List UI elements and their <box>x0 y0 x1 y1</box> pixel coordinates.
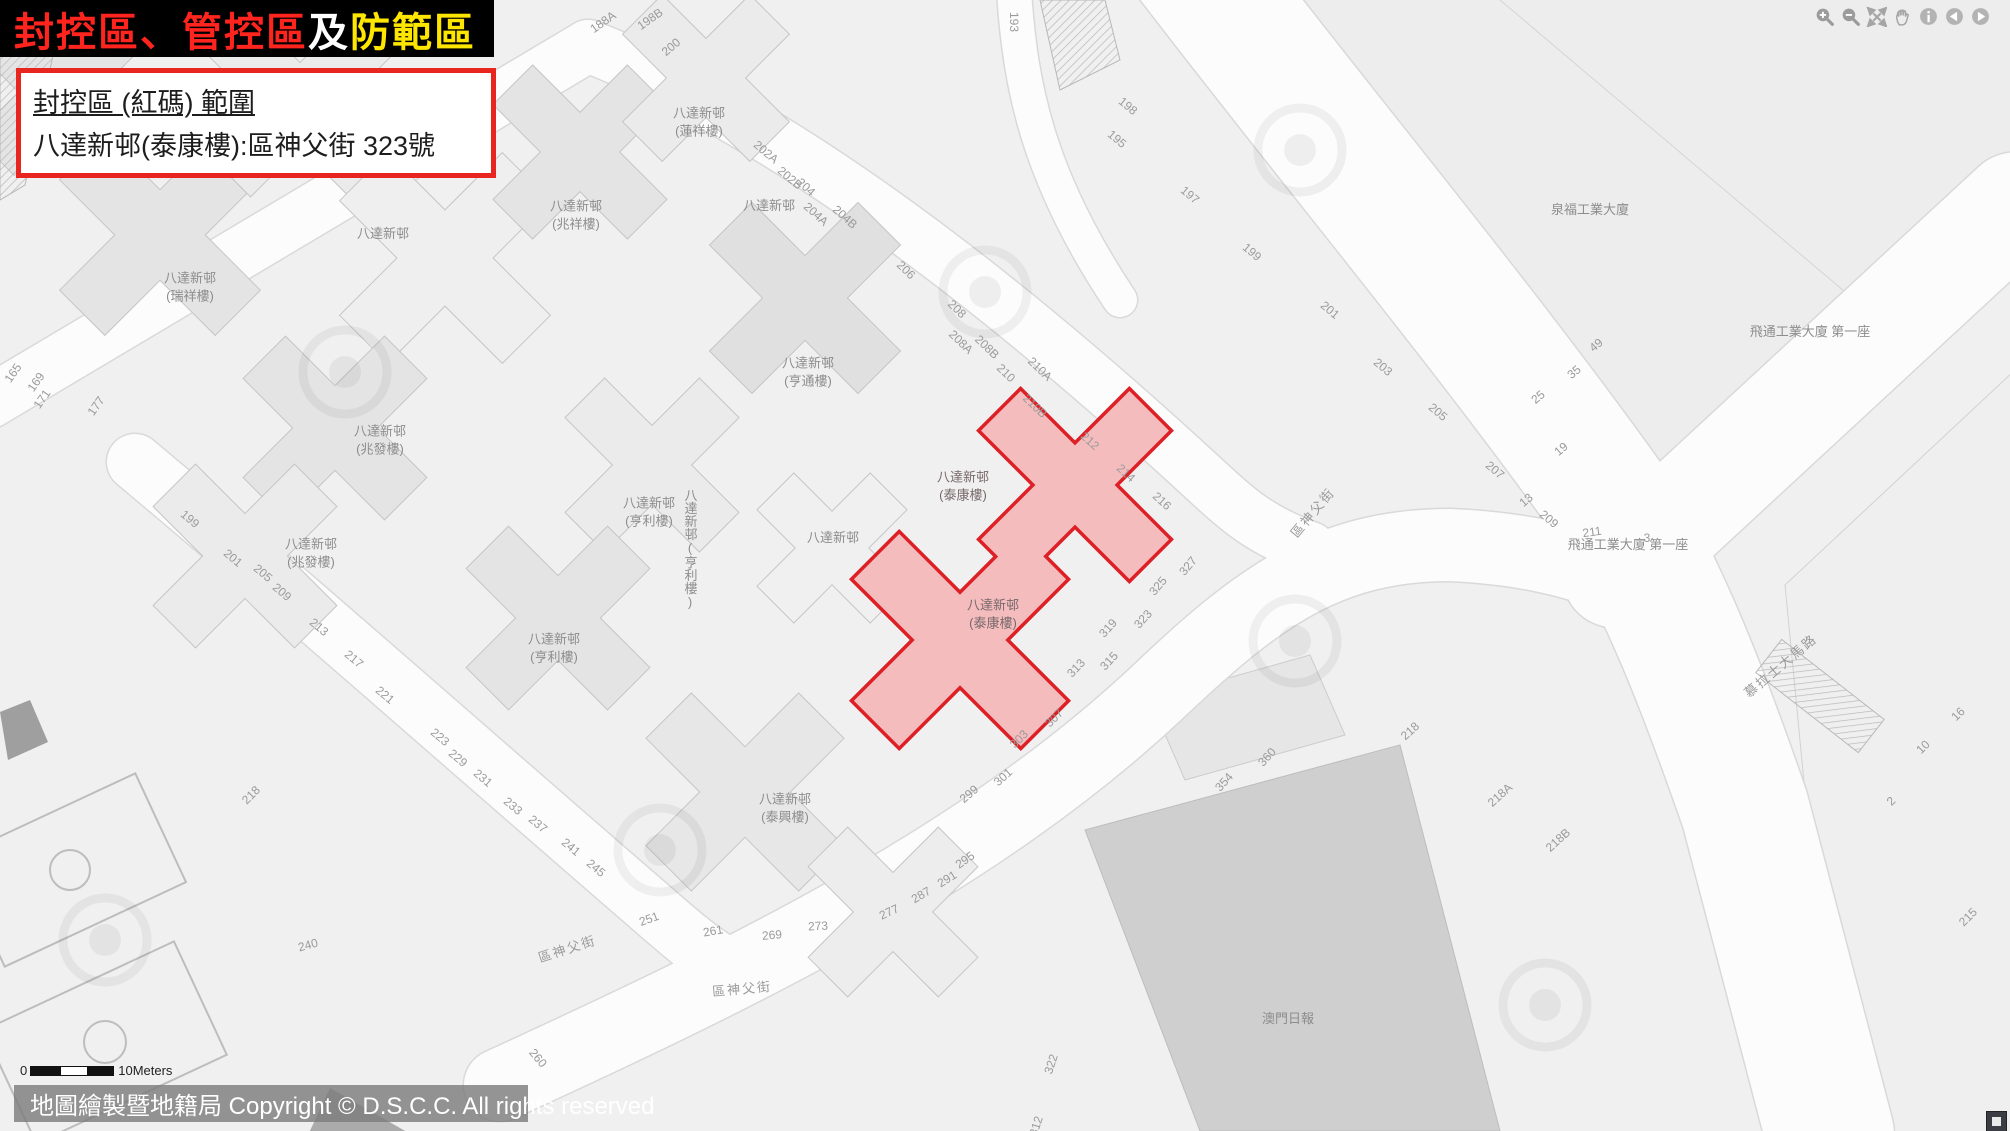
zoom-out-icon[interactable] <box>1840 6 1861 27</box>
title-banner: 封控區、管控區及防範區 <box>0 0 494 57</box>
title-part-red: 封控區、管控區 <box>14 0 308 58</box>
scale-bar: 0 10Meters <box>20 1063 172 1078</box>
scale-units-label: 10Meters <box>118 1063 172 1078</box>
fullscreen-icon[interactable] <box>1866 6 1887 27</box>
pan-hand-icon[interactable] <box>1892 6 1913 27</box>
lockdown-zone-type: 封控區 (紅碼) 範圍 <box>33 81 479 120</box>
title-part-yellow: 防範區 <box>350 0 476 58</box>
copyright-bar: 地圖繪製暨地籍局 Copyright © D.S.C.C. All rights… <box>14 1085 528 1122</box>
map-viewport[interactable]: 八達新邨 (瑞祥樓)八達新邨八達新邨 (兆祥樓)八達新邨 (蓮祥樓)八達新邨八達… <box>0 0 2010 1131</box>
map-toolbar <box>1814 6 1991 27</box>
next-view-icon[interactable] <box>1970 6 1991 27</box>
dscc-logo-icon[interactable] <box>1986 1111 2007 1131</box>
scale-zero-label: 0 <box>20 1063 27 1078</box>
zoom-in-icon[interactable] <box>1814 6 1835 27</box>
previous-view-icon[interactable] <box>1944 6 1965 27</box>
lockdown-zone-address: 八達新邨(泰康樓):區神父街 323號 <box>33 124 479 163</box>
scale-bar-graphic <box>30 1066 114 1076</box>
title-part-white: 及 <box>308 0 350 58</box>
info-icon[interactable] <box>1918 6 1939 27</box>
lockdown-info-box: 封控區 (紅碼) 範圍 八達新邨(泰康樓):區神父街 323號 <box>16 68 496 178</box>
copyright-text: 地圖繪製暨地籍局 Copyright © D.S.C.C. All rights… <box>30 1086 655 1121</box>
